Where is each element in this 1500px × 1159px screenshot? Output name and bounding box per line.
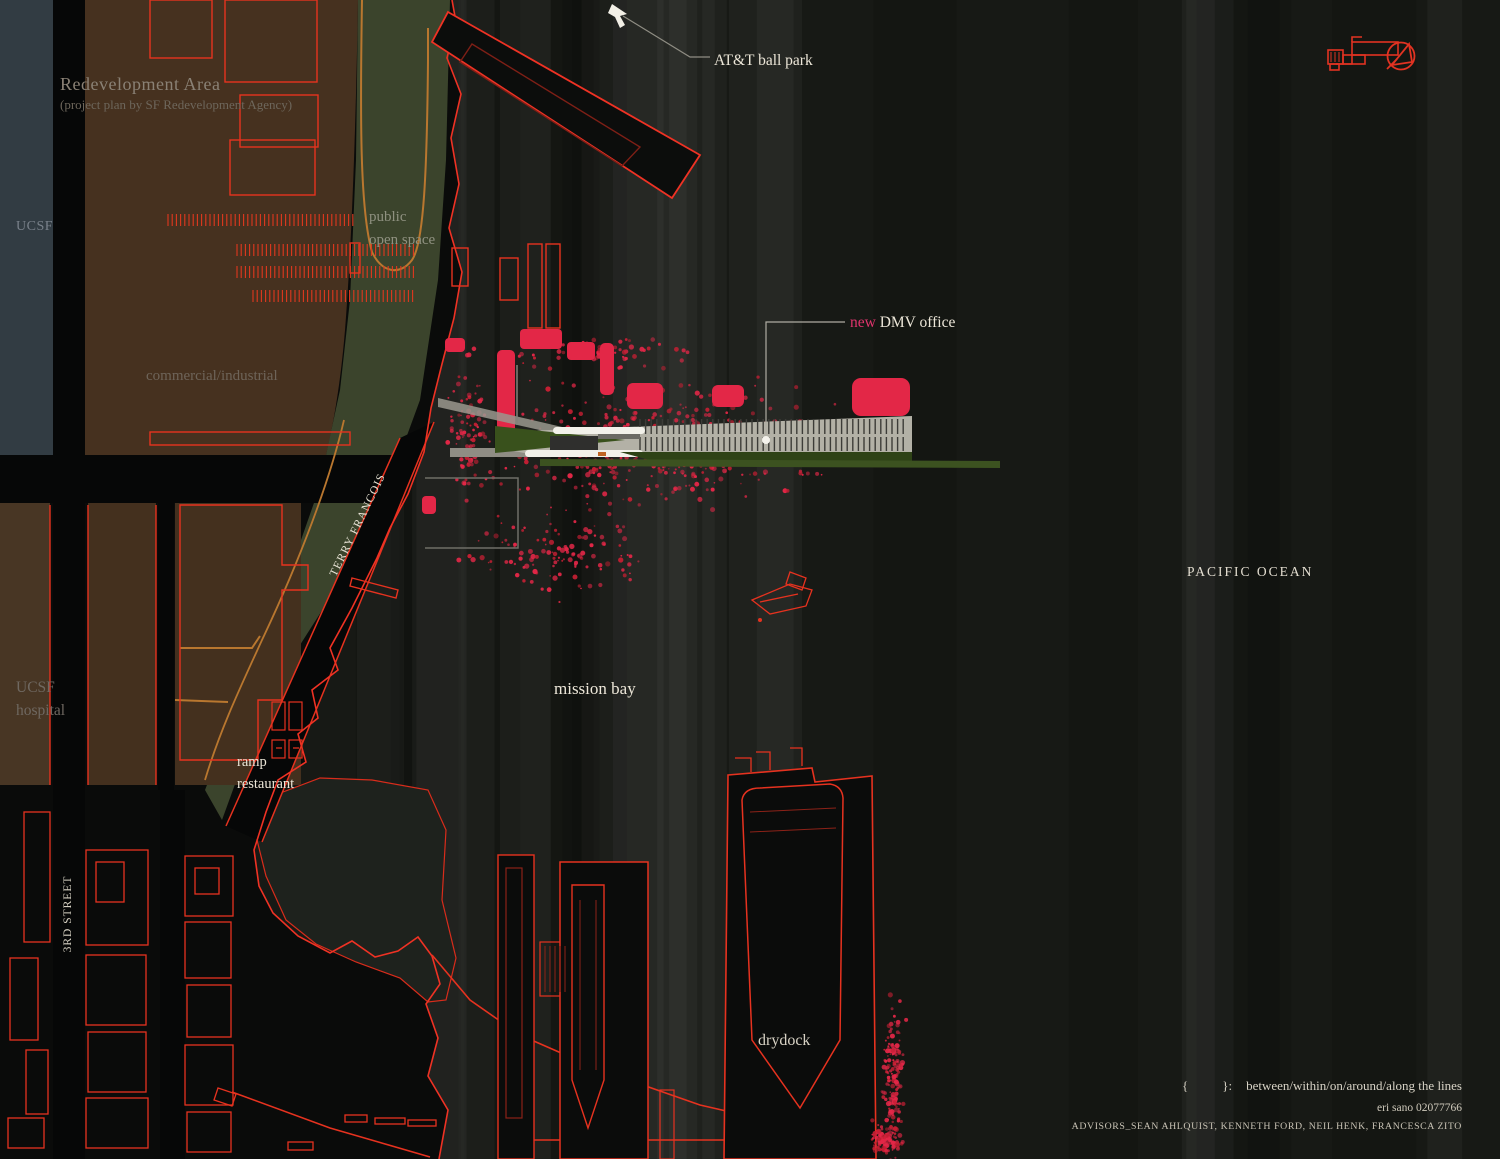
ucsf-hospital-line2: hospital xyxy=(16,699,65,722)
legend-text: between/within/on/around/along the lines xyxy=(1246,1078,1462,1093)
site-plan-map: Redevelopment Area (project plan by SF R… xyxy=(0,0,1500,1159)
mission-bay-label: mission bay xyxy=(554,679,636,699)
ucsf-hospital-label: UCSF hospital xyxy=(16,676,65,722)
public-open-space-line2: open space xyxy=(369,229,435,252)
grid-street-road xyxy=(160,790,185,1159)
public-open-space-line1: public xyxy=(369,206,435,229)
redevelopment-area-label: Redevelopment Area xyxy=(60,74,220,95)
third-street-label: 3RD STREET xyxy=(62,854,74,974)
mid-street-road xyxy=(158,500,174,790)
ramp-restaurant-label: ramp restaurant xyxy=(237,751,294,795)
ucsf-label: UCSF xyxy=(16,219,53,235)
att-ball-park-label: AT&T ball park xyxy=(714,52,813,70)
drydock-pier xyxy=(724,748,876,1159)
new-dmv-office-label: new DMV office xyxy=(850,314,955,332)
drydock-label: drydock xyxy=(758,1032,810,1050)
cross-street-road xyxy=(0,455,398,503)
ship-pier xyxy=(560,862,648,1159)
ramp-restaurant-line2: restaurant xyxy=(237,773,294,795)
redevelopment-area-sublabel: (project plan by SF Redevelopment Agency… xyxy=(60,97,292,113)
new-dmv-rest: DMV office xyxy=(876,314,956,331)
public-open-space-label: public open space xyxy=(369,206,435,252)
pacific-ocean-label: PACIFIC OCEAN xyxy=(1187,564,1313,580)
credits-block: {}:between/within/on/around/along the li… xyxy=(1072,1078,1462,1132)
hospital-strip xyxy=(0,500,50,785)
hospital-block-a xyxy=(88,502,156,785)
piers xyxy=(498,855,674,1159)
third-street-road xyxy=(53,0,85,1159)
new-dmv-prefix: new xyxy=(850,314,876,331)
author-line: eri sano 02077766 xyxy=(1072,1102,1462,1114)
legend-colon: : xyxy=(1228,1078,1232,1093)
legend-line: {}:between/within/on/around/along the li… xyxy=(1072,1078,1462,1094)
ramp-restaurant-line1: ramp xyxy=(237,751,294,773)
commercial-industrial-label: commercial/industrial xyxy=(146,368,278,385)
advisors-line: ADVISORS_SEAN AHLQUIST, KENNETH FORD, NE… xyxy=(1072,1121,1462,1132)
ucsf-hospital-line1: UCSF xyxy=(16,676,65,699)
legend-brace-open: { xyxy=(1182,1078,1188,1093)
